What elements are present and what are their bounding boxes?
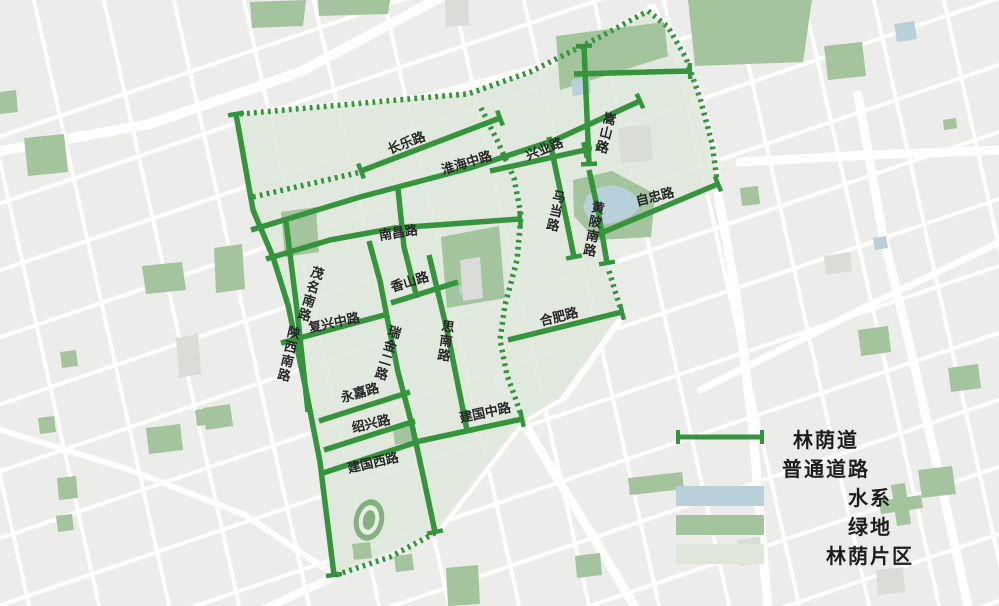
map-legend: 林荫道 普通道路 水系 绿地 林荫片区 [676, 427, 976, 565]
green-area [0, 90, 18, 114]
legend-label-water: 水系 [764, 482, 976, 511]
legend-label-green-space: 绿地 [764, 511, 976, 540]
water-area [873, 236, 888, 250]
legend-label-treelined-district: 林荫片区 [764, 540, 976, 569]
green-area [943, 118, 957, 130]
green-area [146, 424, 183, 454]
green-area [56, 514, 74, 532]
road-nanchang-lu-endcap [519, 211, 520, 227]
green-area [688, 0, 812, 66]
road-songshan-lu-endcap [576, 46, 592, 47]
green-area [142, 262, 186, 294]
building [176, 334, 201, 378]
green-area [318, 0, 390, 16]
green-area [824, 42, 866, 80]
green-area [394, 554, 414, 572]
green-area [740, 186, 760, 206]
green-area [57, 476, 78, 500]
road-shanxi-nan-lu-endcap [228, 113, 244, 116]
road-shanxi-nan-lu-endcap [326, 574, 342, 576]
legend-label-ordinary-road: 普通道路 [676, 453, 976, 482]
building [445, 0, 469, 27]
map-screenshot: 长乐路淮海中路兴业路嵩山路马当路黄陂南路自忠路南昌路茂名南路香山路复兴中路陕西南… [0, 0, 999, 606]
green-area [38, 416, 56, 434]
water-swatch [676, 486, 764, 506]
road-madang-lu-endcap [566, 255, 582, 258]
legend-item-ordinary-road: 普通道路 [676, 456, 976, 478]
green-area [24, 134, 68, 176]
dashed-line-icon [676, 427, 764, 447]
legend-item-water: 水系 [676, 485, 976, 507]
green-area [352, 542, 372, 560]
green-area [858, 326, 891, 356]
green-area [446, 565, 480, 606]
building [824, 252, 852, 275]
green-area [575, 553, 602, 578]
green-space-swatch [676, 515, 764, 535]
road-huangpi-nan-lu-endcap [599, 262, 615, 265]
building [618, 125, 653, 163]
water-area [894, 21, 917, 42]
green-area [250, 0, 306, 28]
building [876, 567, 905, 595]
treelined-district-swatch [676, 544, 764, 564]
legend-item-green-space: 绿地 [676, 514, 976, 536]
green-area [214, 244, 245, 293]
green-area [195, 408, 214, 426]
green-area [948, 364, 981, 392]
road-songshan-lu-endcap [581, 164, 597, 165]
legend-item-treelined-district: 林荫片区 [676, 543, 976, 565]
green-area [60, 350, 78, 368]
building [460, 257, 483, 301]
road-taicang-lu [574, 71, 690, 74]
